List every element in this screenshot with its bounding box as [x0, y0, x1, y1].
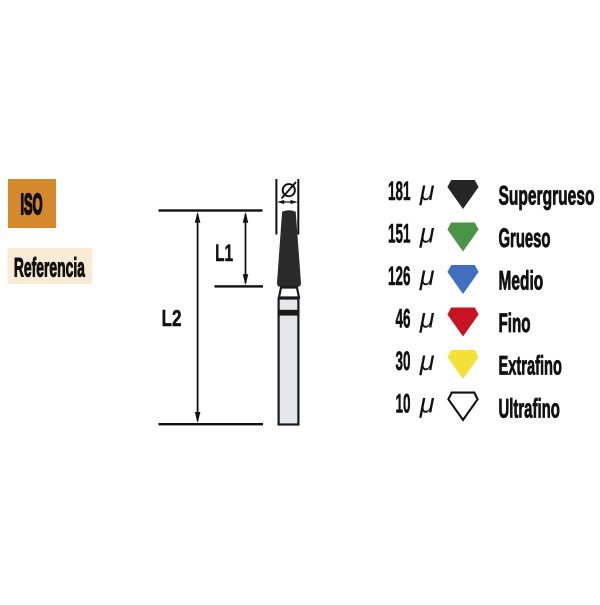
- svg-text:μ: μ: [419, 388, 435, 418]
- svg-text:μ: μ: [419, 218, 435, 248]
- svg-text:μ: μ: [419, 346, 435, 376]
- svg-text:Medio: Medio: [499, 265, 544, 295]
- svg-text:30: 30: [396, 346, 411, 376]
- svg-text:μ: μ: [419, 261, 435, 291]
- svg-text:Fino: Fino: [499, 308, 531, 338]
- svg-text:46: 46: [396, 304, 411, 334]
- svg-text:126: 126: [388, 261, 411, 291]
- svg-text:ISO: ISO: [21, 189, 43, 221]
- svg-text:μ: μ: [419, 303, 435, 333]
- svg-text:Extrafino: Extrafino: [499, 350, 562, 380]
- svg-text:151: 151: [388, 219, 411, 249]
- svg-text:L2: L2: [162, 305, 182, 331]
- svg-text:10: 10: [396, 389, 411, 419]
- svg-text:L1: L1: [215, 240, 233, 267]
- svg-text:μ: μ: [419, 176, 435, 206]
- svg-text:Grueso: Grueso: [499, 223, 551, 253]
- svg-text:Ultrafino: Ultrafino: [499, 393, 560, 423]
- svg-text:Referencia: Referencia: [14, 252, 86, 282]
- svg-text:Supergrueso: Supergrueso: [499, 180, 595, 210]
- svg-text:181: 181: [388, 176, 411, 206]
